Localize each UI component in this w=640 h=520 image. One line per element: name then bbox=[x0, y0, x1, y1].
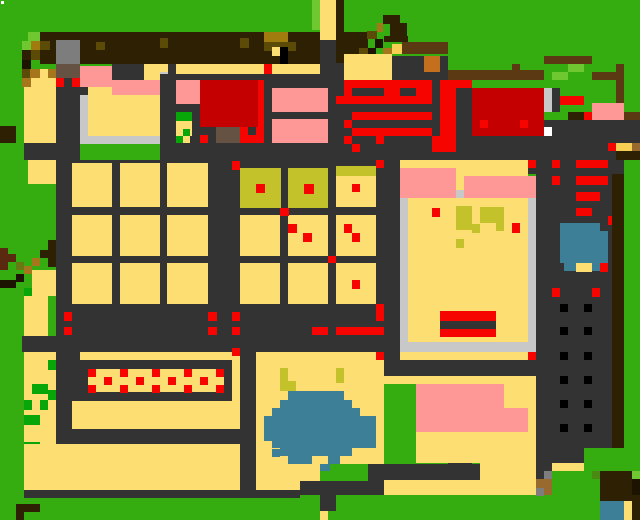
stone-wall-tile bbox=[528, 198, 536, 348]
sand-floor-tile bbox=[167, 215, 208, 256]
sand-floor-tile bbox=[384, 480, 480, 495]
lantern-tile bbox=[184, 369, 192, 377]
window-tile bbox=[584, 376, 592, 384]
road-tile bbox=[300, 481, 384, 495]
lantern-tile bbox=[344, 88, 352, 96]
mat-tile bbox=[288, 381, 296, 391]
sand-floor-tile bbox=[24, 87, 56, 143]
sand-floor-tile bbox=[88, 87, 112, 95]
lantern-tile bbox=[440, 329, 496, 337]
sand-floor-tile bbox=[176, 64, 264, 74]
thatch-tile bbox=[264, 32, 288, 42]
grass-tile bbox=[552, 64, 568, 72]
lantern-tile bbox=[312, 327, 328, 335]
sand-floor-tile bbox=[320, 0, 336, 40]
lantern-tile bbox=[352, 280, 360, 289]
sand-floor-tile bbox=[576, 263, 592, 272]
lantern-tile bbox=[232, 161, 240, 170]
water-tile bbox=[600, 501, 624, 520]
copper-roof-tile bbox=[424, 56, 440, 72]
lantern-tile bbox=[576, 208, 592, 216]
road-tile bbox=[224, 360, 232, 401]
stone-wall-tile bbox=[400, 198, 408, 348]
dark-wood-tile bbox=[16, 512, 24, 520]
stone-wall-tile bbox=[456, 190, 464, 198]
lantern-tile bbox=[184, 385, 192, 393]
lantern-tile bbox=[592, 288, 600, 297]
lantern-tile bbox=[136, 377, 144, 385]
road-tile bbox=[384, 360, 536, 376]
lantern-tile bbox=[88, 369, 96, 377]
mat-tile bbox=[280, 368, 288, 391]
blossom-tile bbox=[592, 103, 624, 120]
sand-floor-tile bbox=[72, 401, 240, 429]
sand-floor-tile bbox=[32, 270, 56, 296]
water-tile bbox=[320, 464, 330, 471]
thatch-dark-tile bbox=[96, 42, 105, 50]
lantern-tile bbox=[600, 263, 608, 272]
water-tile bbox=[328, 456, 340, 464]
thatch-dark-tile bbox=[240, 38, 249, 48]
lantern-tile bbox=[152, 369, 160, 377]
lantern-tile bbox=[552, 160, 560, 168]
sand-floor-tile bbox=[120, 263, 160, 304]
lantern-tile bbox=[304, 184, 314, 194]
lantern-tile bbox=[344, 224, 352, 233]
snow-tile bbox=[544, 127, 552, 136]
plank-tile bbox=[632, 143, 640, 151]
thatch-tile bbox=[31, 41, 40, 50]
water-tile bbox=[272, 449, 280, 457]
dark-wood-tile bbox=[568, 112, 584, 120]
window-tile bbox=[584, 424, 592, 432]
sand-floor-tile bbox=[167, 263, 208, 304]
road-tile bbox=[112, 64, 144, 80]
blossom-tile bbox=[320, 119, 328, 143]
dark-door-tile bbox=[632, 479, 640, 495]
lantern-tile bbox=[152, 385, 160, 393]
branch-tile bbox=[377, 23, 383, 32]
lantern-tile bbox=[120, 385, 128, 393]
lantern-tile bbox=[416, 88, 432, 96]
lantern-tile bbox=[512, 223, 520, 233]
crops-tile bbox=[176, 136, 183, 143]
water-tile bbox=[280, 448, 352, 456]
blossom-tile bbox=[416, 384, 504, 408]
road-tile bbox=[552, 88, 560, 112]
gold-tile-tile bbox=[616, 143, 632, 151]
thatch-dark-tile bbox=[160, 38, 168, 48]
branch-tile bbox=[24, 266, 32, 274]
lantern-tile bbox=[280, 208, 289, 216]
light-grass-tile bbox=[312, 0, 320, 30]
branch-tile bbox=[32, 258, 40, 266]
road-tile bbox=[536, 471, 544, 479]
dark-wood-tile bbox=[616, 151, 640, 160]
water-tile bbox=[288, 391, 344, 400]
crops-tile bbox=[24, 400, 32, 410]
sand-floor-tile bbox=[88, 95, 160, 136]
lantern-tile bbox=[576, 176, 608, 185]
water-tile bbox=[560, 231, 608, 263]
plank-tile bbox=[544, 479, 552, 495]
lantern-tile bbox=[120, 369, 128, 377]
lantern-tile bbox=[352, 233, 360, 242]
stone-tile bbox=[536, 488, 544, 496]
dark-wood-tile bbox=[600, 471, 632, 501]
stone-tile bbox=[56, 40, 80, 64]
mat-tile bbox=[480, 207, 504, 223]
window-tile bbox=[560, 327, 568, 335]
sand-floor-tile bbox=[552, 463, 584, 471]
lantern-tile bbox=[328, 256, 336, 263]
water-tile bbox=[560, 223, 600, 231]
plank-tile bbox=[536, 479, 544, 488]
road-tile bbox=[24, 143, 56, 160]
dark-wood-tile bbox=[0, 126, 16, 143]
branch-tile bbox=[48, 69, 56, 78]
lantern-tile bbox=[64, 327, 72, 335]
lantern-tile bbox=[480, 120, 488, 128]
dark-wood-tile bbox=[16, 504, 40, 512]
lantern-tile bbox=[344, 120, 352, 128]
mat-tile bbox=[472, 224, 480, 233]
light-grass-tile bbox=[28, 32, 40, 41]
blossom-tile bbox=[416, 408, 528, 432]
sand-floor-tile bbox=[144, 64, 160, 80]
blossom-tile bbox=[272, 88, 320, 112]
lantern-tile bbox=[376, 352, 384, 360]
sand-floor-tile bbox=[456, 168, 480, 176]
lantern-tile bbox=[528, 352, 536, 360]
lantern-tile bbox=[552, 176, 560, 185]
sand-floor-tile bbox=[528, 408, 536, 432]
stone-wall-tile bbox=[80, 95, 88, 136]
water-tile bbox=[272, 441, 376, 448]
grass-tile bbox=[472, 80, 480, 88]
wood-fence-tile bbox=[624, 112, 640, 120]
dark-door-tile bbox=[375, 39, 383, 48]
window-tile bbox=[280, 47, 288, 65]
lantern-tile bbox=[440, 80, 472, 88]
grass-tile bbox=[568, 72, 584, 80]
dark-wood-tile bbox=[632, 495, 640, 520]
lantern-tile bbox=[88, 385, 96, 393]
sand-floor-tile bbox=[28, 160, 56, 184]
sand-floor-tile bbox=[504, 384, 536, 408]
water-tile bbox=[564, 263, 576, 271]
thatch-dark-tile bbox=[31, 50, 40, 60]
crops-tile bbox=[48, 360, 56, 370]
road-tile bbox=[240, 348, 256, 491]
sand-floor-tile bbox=[24, 444, 240, 490]
sand-floor-tile bbox=[480, 463, 536, 495]
lantern-tile bbox=[336, 96, 432, 104]
stone-wall-tile bbox=[80, 136, 168, 144]
dark-door-tile bbox=[22, 60, 31, 69]
road-tile bbox=[80, 392, 232, 401]
water-tile bbox=[264, 416, 376, 441]
wood-fence-tile bbox=[402, 42, 448, 54]
water-tile bbox=[288, 456, 312, 464]
gold-tile-tile bbox=[392, 44, 402, 54]
lantern-tile bbox=[584, 112, 592, 120]
window-tile bbox=[584, 400, 592, 408]
window-tile bbox=[584, 327, 592, 335]
lantern-tile bbox=[336, 327, 384, 335]
lantern-tile bbox=[208, 327, 217, 335]
crops-tile bbox=[24, 415, 40, 425]
dark-wood-tile bbox=[22, 50, 31, 60]
dark-wood-tile bbox=[40, 250, 48, 258]
wood-fence-tile bbox=[544, 56, 592, 64]
lantern-tile bbox=[256, 184, 265, 193]
road-tile bbox=[80, 87, 88, 95]
stone-wall-tile bbox=[544, 88, 552, 112]
blossom-tile bbox=[272, 119, 320, 143]
road-tile bbox=[80, 369, 88, 392]
lantern-tile bbox=[344, 136, 352, 144]
lantern-tile bbox=[576, 192, 600, 201]
lantern-tile bbox=[344, 80, 432, 88]
lantern-tile bbox=[264, 64, 272, 74]
lantern-tile bbox=[520, 120, 528, 128]
lantern-tile bbox=[352, 128, 432, 136]
lantern-tile bbox=[376, 160, 384, 168]
lantern-tile bbox=[352, 144, 360, 152]
game-screenshot bbox=[0, 0, 640, 520]
mat-tile bbox=[336, 368, 344, 383]
sand-floor-tile bbox=[167, 163, 208, 207]
road-tile bbox=[536, 463, 552, 471]
dark-wood-tile bbox=[612, 174, 624, 448]
lantern-tile bbox=[608, 143, 616, 151]
dark-door-tile bbox=[16, 274, 24, 282]
window-tile bbox=[560, 352, 568, 360]
lantern-tile bbox=[232, 327, 240, 335]
lantern-tile bbox=[352, 184, 360, 192]
lantern-tile bbox=[440, 88, 456, 152]
red-roof-tile bbox=[200, 80, 258, 127]
lantern-tile bbox=[200, 377, 208, 385]
dark-wood-tile bbox=[336, 0, 344, 32]
window-tile bbox=[560, 400, 568, 408]
lantern-tile bbox=[376, 136, 384, 144]
lantern-tile bbox=[104, 377, 112, 385]
sand-floor-tile bbox=[624, 501, 632, 520]
wood-fence-tile bbox=[448, 70, 544, 80]
sand-floor-tile bbox=[384, 376, 536, 384]
sand-floor-tile bbox=[344, 54, 392, 80]
road-tile bbox=[536, 174, 612, 448]
sand-floor-tile bbox=[288, 263, 328, 304]
sand-floor-tile bbox=[183, 136, 190, 143]
blossom-tile bbox=[176, 80, 200, 104]
crops-tile bbox=[183, 129, 190, 136]
lantern-tile bbox=[288, 224, 297, 233]
lantern-tile bbox=[200, 135, 208, 143]
awning-tile bbox=[56, 64, 80, 78]
lantern-tile bbox=[216, 369, 224, 377]
mat-tile bbox=[336, 166, 376, 176]
sand-floor-tile bbox=[416, 432, 536, 463]
red-roof-tile bbox=[472, 88, 544, 136]
sand-floor-tile bbox=[80, 352, 240, 360]
blossom-tile bbox=[112, 80, 160, 95]
lantern-tile bbox=[303, 233, 312, 242]
sand-floor-tile bbox=[456, 176, 464, 190]
blossom-tile bbox=[400, 168, 456, 198]
lantern-tile bbox=[208, 312, 217, 321]
mat-tile bbox=[496, 223, 504, 231]
road-tile bbox=[248, 127, 256, 135]
log-tile bbox=[8, 254, 16, 262]
branch-tile bbox=[30, 69, 40, 78]
sand-floor-tile bbox=[240, 215, 280, 256]
lantern-tile bbox=[168, 377, 176, 385]
lantern-tile bbox=[432, 136, 440, 152]
moss-tile bbox=[16, 262, 24, 270]
road-tile bbox=[24, 490, 300, 498]
sand-floor-tile bbox=[24, 296, 48, 336]
dark-wood-tile bbox=[48, 240, 56, 267]
road-tile bbox=[80, 360, 232, 369]
dark-door-tile bbox=[0, 280, 16, 288]
thatch-dark-tile bbox=[40, 41, 50, 50]
sand-floor-tile bbox=[72, 215, 112, 256]
road-tile bbox=[440, 321, 496, 329]
window-tile bbox=[560, 424, 568, 432]
sand-floor-tile bbox=[240, 263, 280, 304]
lantern-tile bbox=[440, 311, 496, 321]
road-tile bbox=[168, 64, 176, 74]
wood-fence-tile bbox=[512, 64, 520, 72]
water-tile bbox=[272, 408, 360, 416]
lantern-tile bbox=[216, 385, 224, 393]
lantern-tile bbox=[528, 160, 536, 168]
crops-tile bbox=[48, 390, 56, 400]
lantern-tile bbox=[384, 88, 400, 96]
lantern-tile bbox=[560, 96, 584, 105]
road-tile bbox=[536, 448, 584, 463]
thatch-dark-tile bbox=[367, 31, 377, 39]
lantern-tile bbox=[56, 78, 64, 87]
road-tile bbox=[56, 78, 80, 160]
lantern-tile bbox=[232, 312, 240, 321]
mat-tile bbox=[456, 239, 464, 248]
window-tile bbox=[560, 304, 568, 312]
snow-tile bbox=[1, 1, 4, 4]
lantern-tile bbox=[576, 160, 608, 168]
crops-tile bbox=[176, 112, 192, 121]
sand-floor-tile bbox=[120, 215, 160, 256]
road-tile bbox=[368, 464, 480, 481]
dark-moss-tile bbox=[592, 471, 600, 479]
lantern-tile bbox=[376, 304, 384, 321]
sand-floor-tile bbox=[120, 163, 160, 207]
road-tile bbox=[56, 429, 240, 444]
sand-floor-tile bbox=[320, 511, 328, 520]
awning-tile bbox=[216, 127, 240, 143]
stone-tile bbox=[544, 471, 552, 479]
lantern-tile bbox=[432, 208, 440, 217]
blossom-tile bbox=[320, 88, 328, 112]
mat-tile bbox=[456, 206, 472, 230]
window-tile bbox=[560, 376, 568, 384]
sand-floor-tile bbox=[400, 352, 528, 360]
lantern-tile bbox=[64, 312, 72, 321]
grass-tile bbox=[624, 160, 640, 174]
sand-floor-tile bbox=[72, 263, 112, 304]
lantern-tile bbox=[258, 80, 264, 127]
branch-tile bbox=[22, 78, 31, 87]
lantern-tile bbox=[232, 348, 240, 356]
window-tile bbox=[584, 304, 592, 312]
lantern-tile bbox=[72, 78, 80, 87]
window-tile bbox=[584, 352, 592, 360]
light-grass-tile bbox=[22, 41, 31, 50]
log-tile bbox=[0, 248, 8, 270]
blossom-tile bbox=[80, 66, 112, 87]
sand-floor-tile bbox=[160, 64, 168, 72]
road-tile bbox=[320, 495, 336, 511]
blossom-tile bbox=[464, 176, 536, 198]
water-tile bbox=[592, 263, 600, 271]
crops-tile bbox=[40, 400, 48, 410]
sand-floor-tile bbox=[272, 64, 320, 74]
water-tile bbox=[280, 400, 352, 408]
sand-floor-tile bbox=[31, 78, 56, 87]
lantern-tile bbox=[552, 288, 560, 297]
crops-tile bbox=[32, 384, 48, 394]
lantern-tile bbox=[352, 112, 432, 120]
sand-floor-tile bbox=[400, 160, 528, 168]
sand-floor-tile bbox=[72, 163, 112, 207]
